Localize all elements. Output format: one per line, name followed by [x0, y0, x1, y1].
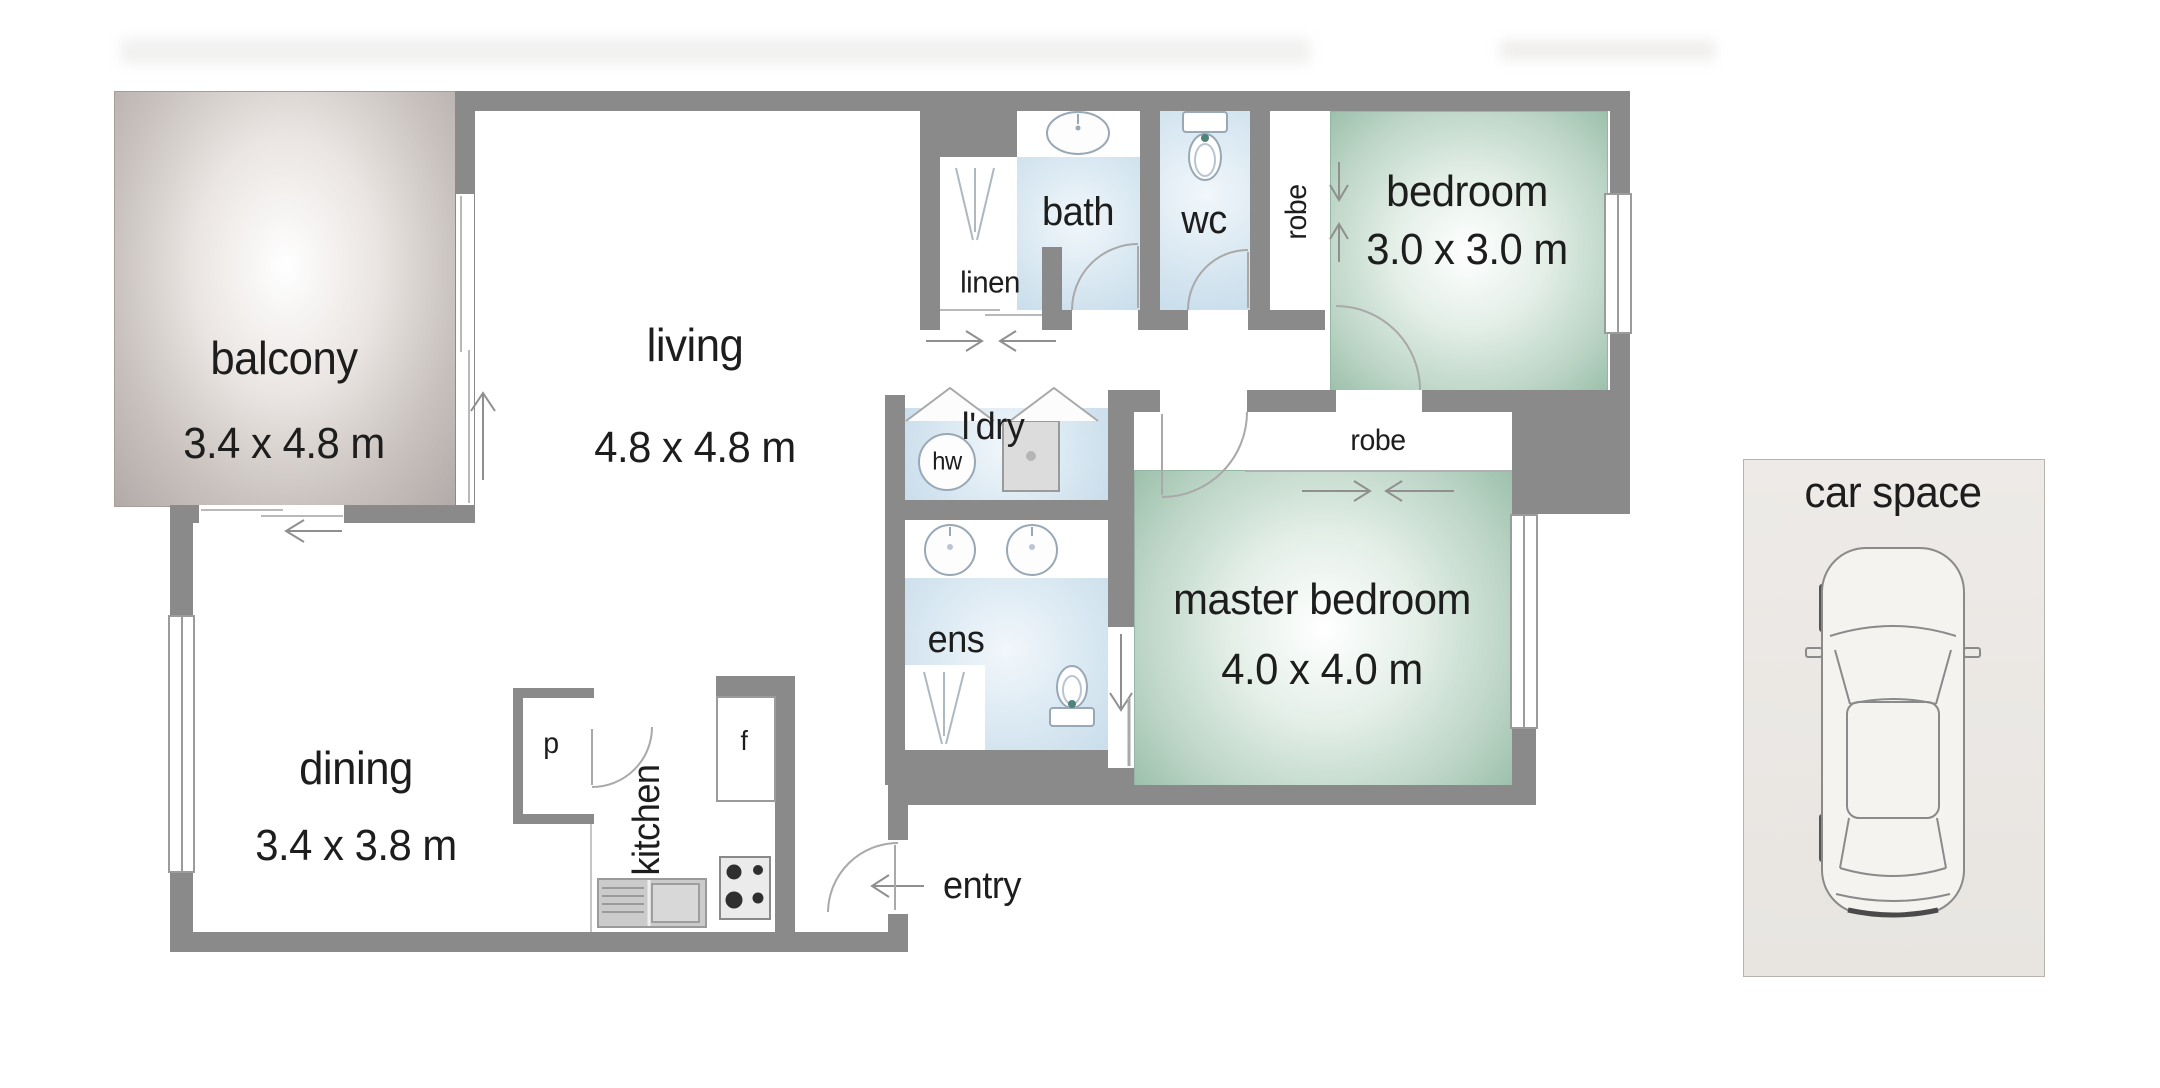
- wall-laundry-ensuite: [885, 500, 1108, 520]
- door-gap-wc: [1188, 310, 1248, 330]
- area-label-laundry: l'dry: [962, 408, 1025, 446]
- master-bedroom-area: [1134, 470, 1514, 787]
- wall-bath-block-stub: [920, 111, 1017, 157]
- room-label-bedroom: bedroom: [1386, 170, 1548, 214]
- area-label-ensuite: ens: [928, 621, 985, 659]
- room-dims-bedroom: 3.0 x 3.0 m: [1366, 228, 1568, 272]
- kitchen-sink-unit: [597, 878, 707, 928]
- wall-linen-right: [1042, 247, 1062, 330]
- room-dims-balcony: 3.4 x 4.8 m: [183, 422, 385, 466]
- stove-cooktop: [719, 856, 771, 920]
- basin-icon: [1047, 112, 1109, 154]
- wall-fridge-stub: [716, 676, 795, 696]
- door-gap-bath: [1072, 310, 1138, 330]
- fixture-label-fridge: f: [741, 727, 748, 755]
- room-dims-living: 4.8 x 4.8 m: [594, 426, 796, 470]
- basin-icon: [1007, 525, 1057, 575]
- door-gap-entry: [888, 840, 908, 914]
- wall-wc-robe: [1250, 111, 1270, 310]
- area-label-kitchen: kitchen: [628, 764, 666, 875]
- room-dims-dining: 3.4 x 3.8 m: [255, 824, 457, 868]
- room-label-dining: dining: [299, 745, 413, 791]
- window-master-bedroom: [1510, 514, 1538, 729]
- area-label-entry: entry: [943, 867, 1021, 905]
- sliding-door-living-balcony: [456, 194, 474, 505]
- wall-master-bottom: [888, 785, 1536, 805]
- door-gap-ensuite-slider: [1108, 627, 1134, 768]
- scan-artifact: [120, 38, 1310, 64]
- wall-top: [455, 91, 1630, 111]
- wall-balcony-bottom-left: [170, 505, 199, 523]
- area-label-robe-master: robe: [1350, 426, 1405, 456]
- car-space-area: [1743, 459, 2045, 977]
- shower-icon: [956, 168, 994, 240]
- wall-bath-wc: [1140, 111, 1160, 310]
- ensuite-shower-area: [905, 665, 985, 750]
- room-label-living: living: [647, 322, 744, 368]
- area-label-bath: bath: [1042, 192, 1114, 232]
- area-label-car-space: car space: [1805, 471, 1982, 515]
- basin-icon: [925, 525, 975, 575]
- wall-kitchen-right: [775, 696, 795, 952]
- wall-bottom: [170, 932, 908, 952]
- window-bedroom: [1604, 193, 1632, 334]
- area-label-robe-bedroom: robe: [1282, 184, 1312, 239]
- wall-laundry-left: [885, 395, 905, 785]
- wall-balcony-bottom-right: [344, 505, 475, 523]
- wall-right-step: [1536, 412, 1630, 514]
- wall-ensuite-bottom: [885, 750, 1108, 785]
- fixture-label-hot-water: hw: [932, 450, 961, 475]
- scan-artifact: [1500, 40, 1715, 60]
- room-label-balcony: balcony: [210, 335, 357, 381]
- area-label-linen: linen: [960, 267, 1020, 298]
- door-gap-master: [1160, 390, 1247, 412]
- door-gap-bedroom: [1336, 390, 1422, 412]
- floor-plan: balcony 3.4 x 4.8 m living 4.8 x 4.8 m d…: [0, 0, 2160, 1088]
- fixture-label-pantry: p: [543, 729, 558, 759]
- room-label-master-bedroom: master bedroom: [1173, 578, 1471, 622]
- sliding-door-balcony-dining: [199, 505, 344, 523]
- room-dims-master-bedroom: 4.0 x 4.0 m: [1221, 648, 1423, 692]
- arrow-linen-right: [926, 331, 982, 351]
- arrow-left-dining: [286, 520, 342, 542]
- area-label-wc: wc: [1181, 200, 1226, 240]
- arrow-linen-left: [1000, 331, 1056, 351]
- window-dining: [168, 615, 195, 873]
